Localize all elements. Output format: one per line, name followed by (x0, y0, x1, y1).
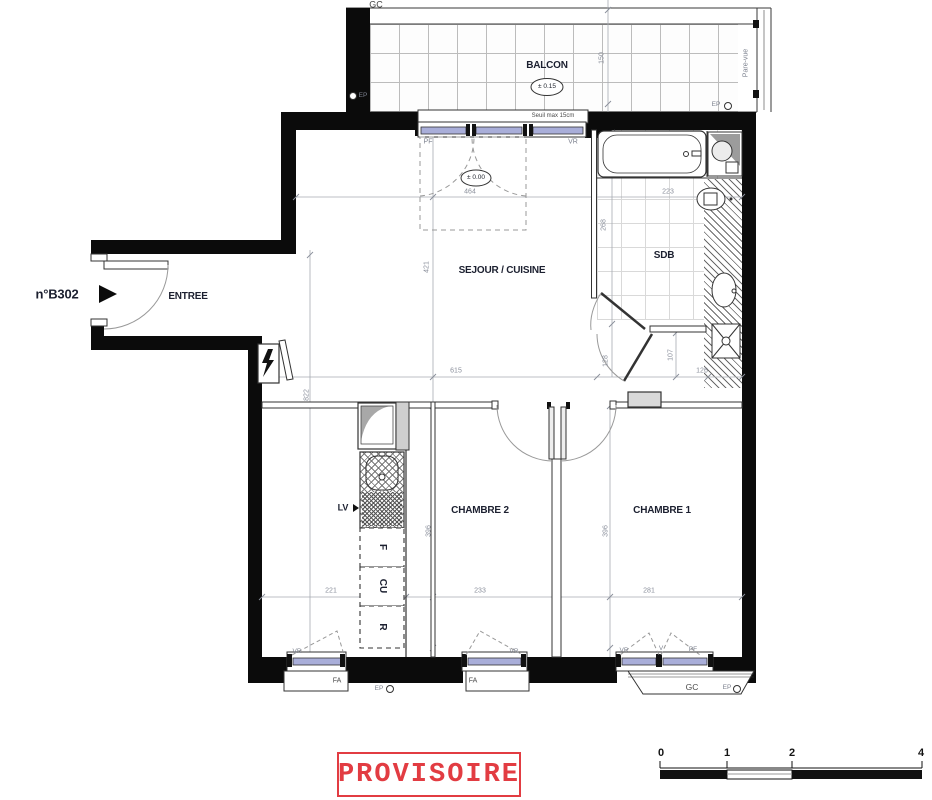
provisional-stamp: PROVISOIRE (337, 752, 521, 797)
bedroom2-door-swing (497, 405, 553, 461)
scale-label-0: 0 (658, 747, 664, 759)
walls (91, 8, 756, 683)
room-label-bedroom2: CHAMBRE 2 (451, 506, 509, 516)
dim-bay-width: 464 (464, 189, 476, 196)
vr-label-w3: VR (619, 648, 628, 655)
scale-bar (660, 761, 922, 779)
dishwasher-label: LV (338, 504, 349, 513)
threshold-note: Seuil max 15cm (532, 113, 575, 119)
duct-box (712, 324, 740, 358)
hall-door-swing (597, 334, 624, 381)
bedroom1-door-leaf (561, 407, 566, 459)
ep-label-w1: EP (375, 686, 384, 693)
railing-post (753, 20, 759, 28)
bay-window-glazing (421, 127, 583, 134)
entry-door-swing (104, 265, 168, 329)
vanity-sink (712, 273, 736, 307)
fridge-slot-label: F (377, 544, 387, 550)
gc-label-bottom: GC (686, 683, 699, 692)
unit-arrow-icon (99, 285, 117, 303)
washbasin-corner (708, 132, 742, 176)
ep-label-balcony-right: EP (712, 102, 721, 109)
room-label-balcony: BALCON (526, 61, 568, 71)
hall-door-leaf (624, 334, 652, 381)
level-floor: ± 0.00 (467, 175, 485, 182)
bathtub (598, 131, 706, 177)
electrical-panel (258, 340, 293, 383)
cooker-slot-label: CU (377, 579, 387, 593)
dim-hall-depth: 128 (603, 355, 610, 367)
plan-linework (0, 0, 932, 800)
scale-label-2: 2 (789, 747, 795, 759)
dim-sdb-depth: 268 (601, 219, 608, 231)
pf-label-w3: PF (689, 647, 697, 654)
vr-label-w1: VR (292, 649, 301, 656)
ep-label-w3: EP (723, 685, 732, 692)
balcony-railing (346, 0, 771, 112)
gc-label-top: GC (369, 1, 383, 10)
dim-bedroom2-depth: 396 (426, 525, 433, 537)
fa-label-w1: FA (333, 678, 342, 685)
dim-living-depth: 421 (424, 261, 431, 273)
scale-label-1: 1 (724, 747, 730, 759)
r-slot-label: R (377, 623, 387, 630)
pf-label-top: PF (424, 139, 433, 146)
room-label-bathroom: SDB (654, 251, 675, 261)
fa-label-w2: FA (469, 678, 478, 685)
kitchen-worktop (358, 402, 409, 450)
room-label-living: SEJOUR / CUISINE (459, 266, 546, 276)
floor-plan: GC EP EP BALCON ± 0.15 150 Pare-vue Seui… (0, 0, 932, 800)
bathroom-door-swing (591, 293, 601, 330)
level-balcony: ± 0.15 (538, 84, 556, 91)
dim-balcony-depth: 150 (599, 52, 606, 64)
kitchen-sink (360, 452, 404, 528)
bedroom1-door-swing (560, 405, 616, 461)
radiator (628, 392, 661, 407)
unit-number: n°B302 (35, 288, 78, 301)
scale-label-4: 4 (918, 747, 924, 759)
rainwater-drains (350, 93, 741, 693)
ep-label-balcony-left: EP (359, 93, 368, 100)
vr-label-w2: VR (509, 649, 518, 656)
pare-vue-label: Pare-vue (743, 49, 750, 77)
room-label-entry: ENTREE (168, 292, 207, 302)
dim-sdb-width: 223 (662, 189, 674, 196)
dim-total-depth: 822 (304, 389, 311, 401)
bedroom2-door-leaf (549, 407, 554, 459)
room-label-bedroom1: CHAMBRE 1 (633, 506, 691, 516)
dim-kitchen-width: 221 (325, 588, 337, 595)
vr-label-top: VR (568, 139, 578, 146)
dim-wc-width: 126 (696, 368, 708, 375)
bathroom-door-leaf (601, 293, 645, 329)
railing-post (753, 90, 759, 98)
dim-living-width: 615 (450, 368, 462, 375)
dim-bedroom1-width: 281 (643, 588, 655, 595)
toilet (697, 188, 733, 210)
v-label-w3: V (659, 646, 663, 653)
dimension-ticks (259, 7, 745, 680)
dim-bedroom1-depth: 396 (603, 525, 610, 537)
dim-wc-depth: 107 (668, 349, 675, 361)
entry-door-leaf (104, 261, 168, 269)
dim-bedroom2-width: 233 (474, 588, 486, 595)
dishwasher-arrow-icon (353, 504, 359, 512)
